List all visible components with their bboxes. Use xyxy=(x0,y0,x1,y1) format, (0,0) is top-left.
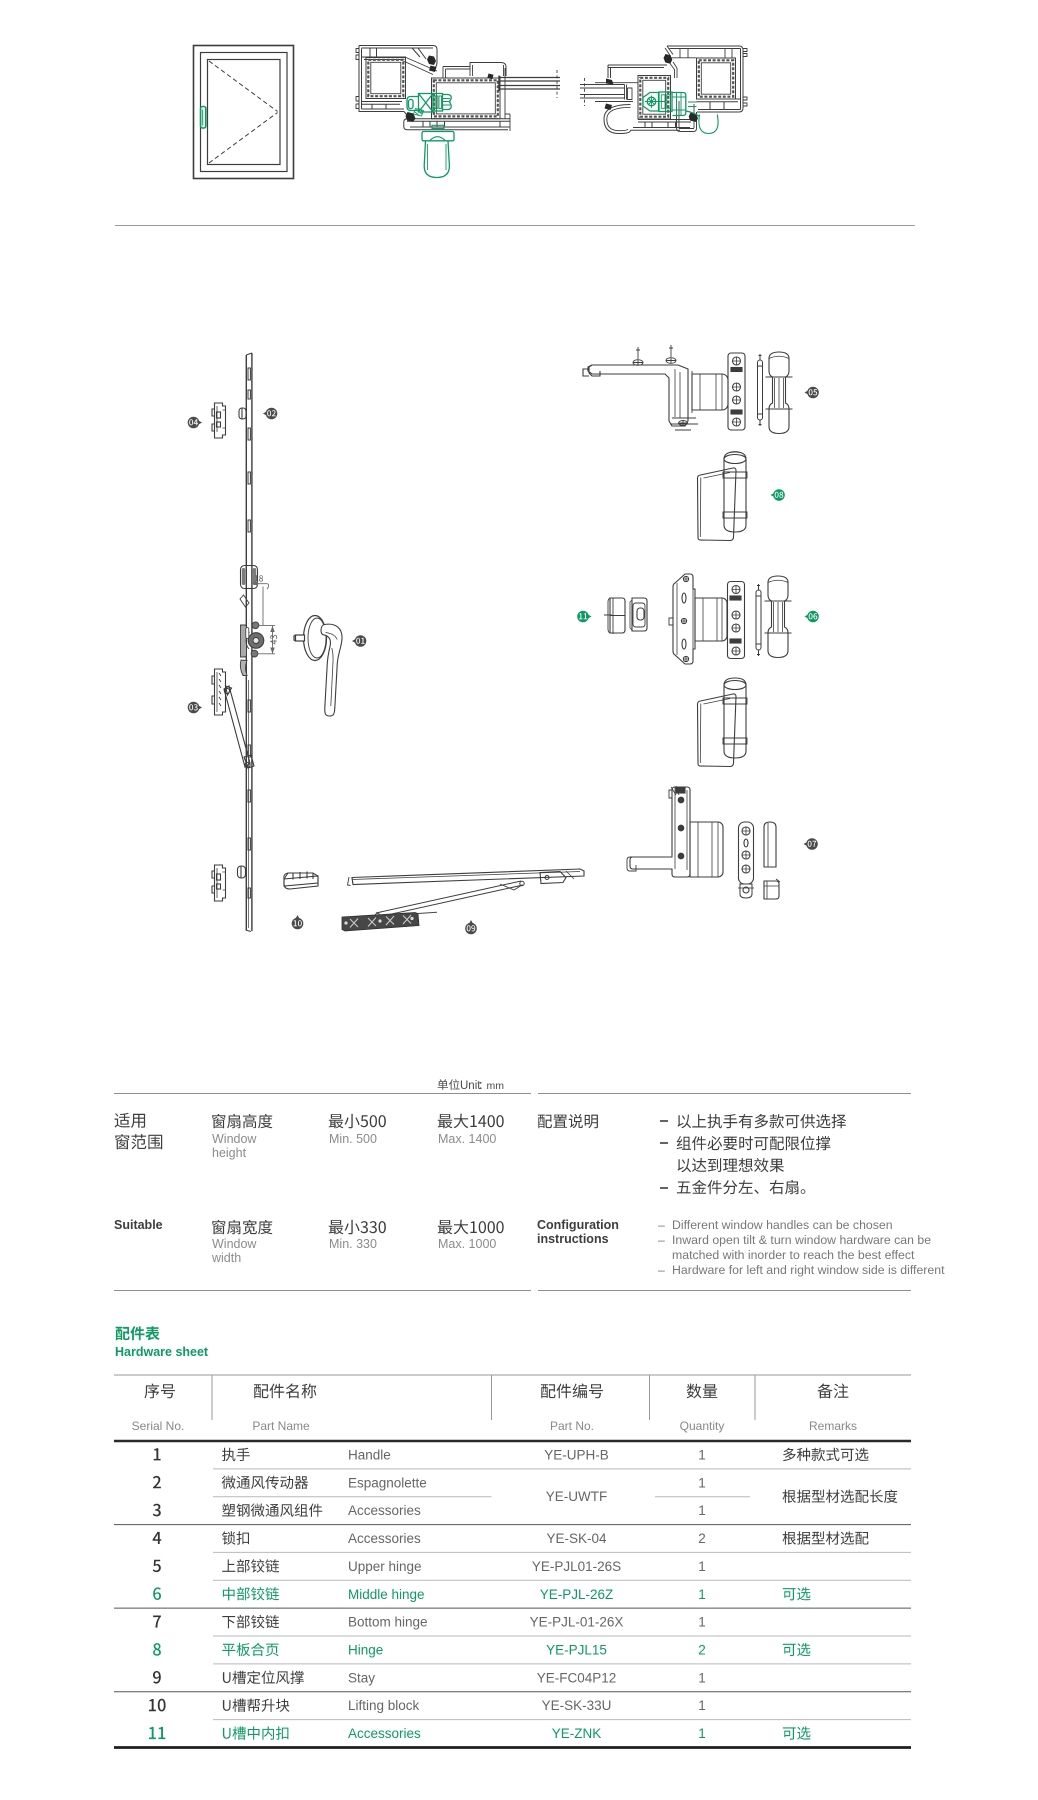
svg-text:1: 1 xyxy=(698,1587,706,1602)
svg-text:YE-UWTF: YE-UWTF xyxy=(546,1489,608,1504)
svg-text:–: – xyxy=(658,1233,665,1247)
svg-text:height: height xyxy=(212,1146,247,1160)
svg-text:Unit: Unit xyxy=(460,1080,481,1092)
svg-text:Handle: Handle xyxy=(348,1447,391,1462)
svg-text:2: 2 xyxy=(698,1643,706,1658)
svg-text:Max. 1400: Max. 1400 xyxy=(438,1132,496,1146)
svg-text:2: 2 xyxy=(698,1531,706,1546)
svg-text:Different window handles can b: Different window handles can be chosen xyxy=(672,1218,893,1232)
svg-text:Hardware for left and right wi: Hardware for left and right window side … xyxy=(672,1263,945,1277)
svg-text:1: 1 xyxy=(698,1503,706,1518)
svg-text:Accessories: Accessories xyxy=(348,1531,421,1546)
svg-text:width: width xyxy=(211,1251,241,1265)
svg-text:Espagnolette: Espagnolette xyxy=(348,1475,427,1490)
svg-text:YE-PJL15: YE-PJL15 xyxy=(546,1643,607,1658)
svg-text:Lifting block: Lifting block xyxy=(348,1698,420,1713)
svg-text:Inward open tilt & turn window: Inward open tilt & turn window hardware … xyxy=(672,1233,931,1247)
svg-text:Configuration: Configuration xyxy=(537,1218,619,1232)
svg-text:YE-SK-04: YE-SK-04 xyxy=(546,1531,607,1546)
svg-text:1: 1 xyxy=(698,1698,706,1713)
svg-text:Hinge: Hinge xyxy=(348,1643,383,1658)
svg-text:Max. 1000: Max. 1000 xyxy=(438,1237,496,1251)
svg-text:–: – xyxy=(658,1218,665,1232)
svg-text:1: 1 xyxy=(698,1726,706,1741)
svg-text:1: 1 xyxy=(698,1615,706,1630)
svg-text:Hardware sheet: Hardware sheet xyxy=(115,1345,209,1359)
svg-text:1: 1 xyxy=(698,1447,706,1462)
svg-text:instructions: instructions xyxy=(537,1232,609,1246)
svg-text:–: – xyxy=(658,1263,665,1277)
svg-text:Min. 500: Min. 500 xyxy=(329,1132,377,1146)
svg-text:Suitable: Suitable xyxy=(114,1218,163,1232)
svg-text:1: 1 xyxy=(698,1670,706,1685)
svg-text:Remarks: Remarks xyxy=(809,1419,857,1433)
svg-text:Middle hinge: Middle hinge xyxy=(348,1587,425,1602)
svg-text:Serial No.: Serial No. xyxy=(132,1419,185,1433)
svg-text:Stay: Stay xyxy=(348,1670,375,1685)
svg-text:YE-UPH-B: YE-UPH-B xyxy=(544,1447,609,1462)
svg-text:Accessories: Accessories xyxy=(348,1503,421,1518)
svg-text:Upper hinge: Upper hinge xyxy=(348,1559,422,1574)
svg-text:Window: Window xyxy=(212,1132,257,1146)
svg-text:Part Name: Part Name xyxy=(252,1419,310,1433)
svg-text:Part No.: Part No. xyxy=(550,1419,594,1433)
svg-text:Min. 330: Min. 330 xyxy=(329,1237,377,1251)
svg-text:1: 1 xyxy=(698,1559,706,1574)
svg-text:YE-FC04P12: YE-FC04P12 xyxy=(537,1670,617,1685)
svg-text:Quantity: Quantity xyxy=(680,1419,725,1433)
svg-text:YE-SK-33U: YE-SK-33U xyxy=(542,1698,612,1713)
svg-text:mm: mm xyxy=(487,1080,505,1092)
svg-text:YE-PJL-26Z: YE-PJL-26Z xyxy=(540,1587,614,1602)
svg-text:Accessories: Accessories xyxy=(348,1726,421,1741)
svg-text:Bottom hinge: Bottom hinge xyxy=(348,1615,428,1630)
svg-text:matched with inorder to reach: matched with inorder to reach the best e… xyxy=(672,1248,915,1262)
svg-text:YE-PJL01-26S: YE-PJL01-26S xyxy=(532,1559,621,1574)
svg-text:Window: Window xyxy=(212,1237,257,1251)
svg-text:YE-ZNK: YE-ZNK xyxy=(552,1726,602,1741)
svg-text:YE-PJL-01-26X: YE-PJL-01-26X xyxy=(530,1615,624,1630)
svg-text:1: 1 xyxy=(698,1475,706,1490)
